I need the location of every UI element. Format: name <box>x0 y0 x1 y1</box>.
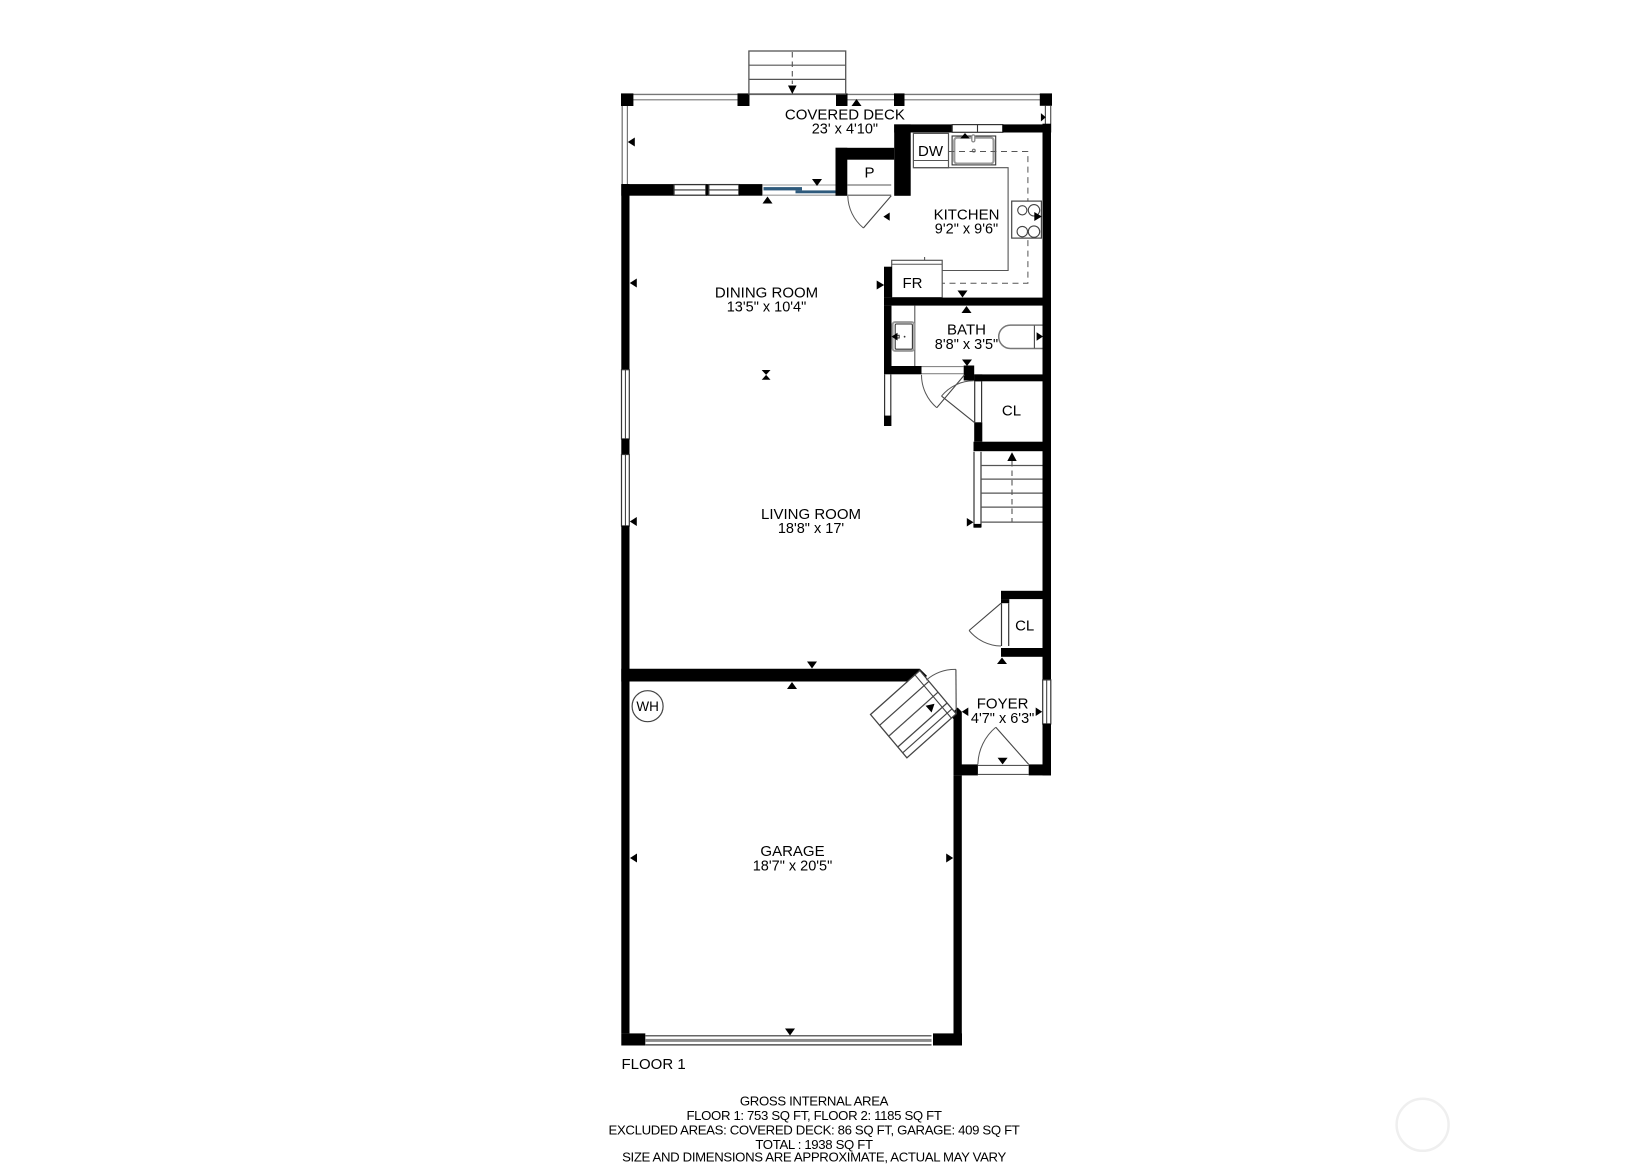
svg-text:GARAGE: GARAGE <box>760 843 824 860</box>
svg-text:BATH: BATH <box>947 322 986 339</box>
svg-text:FOYER: FOYER <box>977 696 1029 713</box>
svg-text:DW: DW <box>918 143 944 160</box>
svg-text:FLOOR 1: 753 SQ FT, FLOOR 2: 1: FLOOR 1: 753 SQ FT, FLOOR 2: 1185 SQ FT <box>686 1108 941 1123</box>
svg-text:GROSS INTERNAL AREA: GROSS INTERNAL AREA <box>740 1094 889 1109</box>
svg-text:18'8" x 17': 18'8" x 17' <box>778 521 845 537</box>
svg-text:FR: FR <box>903 275 923 292</box>
svg-text:EXCLUDED AREAS: COVERED DECK:: EXCLUDED AREAS: COVERED DECK: 86 SQ FT, … <box>609 1123 1020 1138</box>
svg-text:13'5" x 10'4": 13'5" x 10'4" <box>727 300 807 316</box>
svg-text:CL: CL <box>1015 618 1034 635</box>
svg-text:9'2" x 9'6": 9'2" x 9'6" <box>935 222 998 238</box>
svg-text:FLOOR 1: FLOOR 1 <box>622 1056 686 1073</box>
svg-text:CL: CL <box>1002 403 1021 420</box>
svg-text:SIZE AND DIMENSIONS ARE APPROX: SIZE AND DIMENSIONS ARE APPROXIMATE, ACT… <box>622 1150 1006 1164</box>
svg-text:23' x 4'10": 23' x 4'10" <box>812 122 878 138</box>
svg-text:P: P <box>864 165 874 182</box>
svg-text:4'7" x 6'3": 4'7" x 6'3" <box>971 711 1034 727</box>
svg-text:WH: WH <box>636 699 659 714</box>
svg-text:8'8" x 3'5": 8'8" x 3'5" <box>935 337 998 353</box>
svg-text:18'7" x 20'5": 18'7" x 20'5" <box>753 859 833 875</box>
